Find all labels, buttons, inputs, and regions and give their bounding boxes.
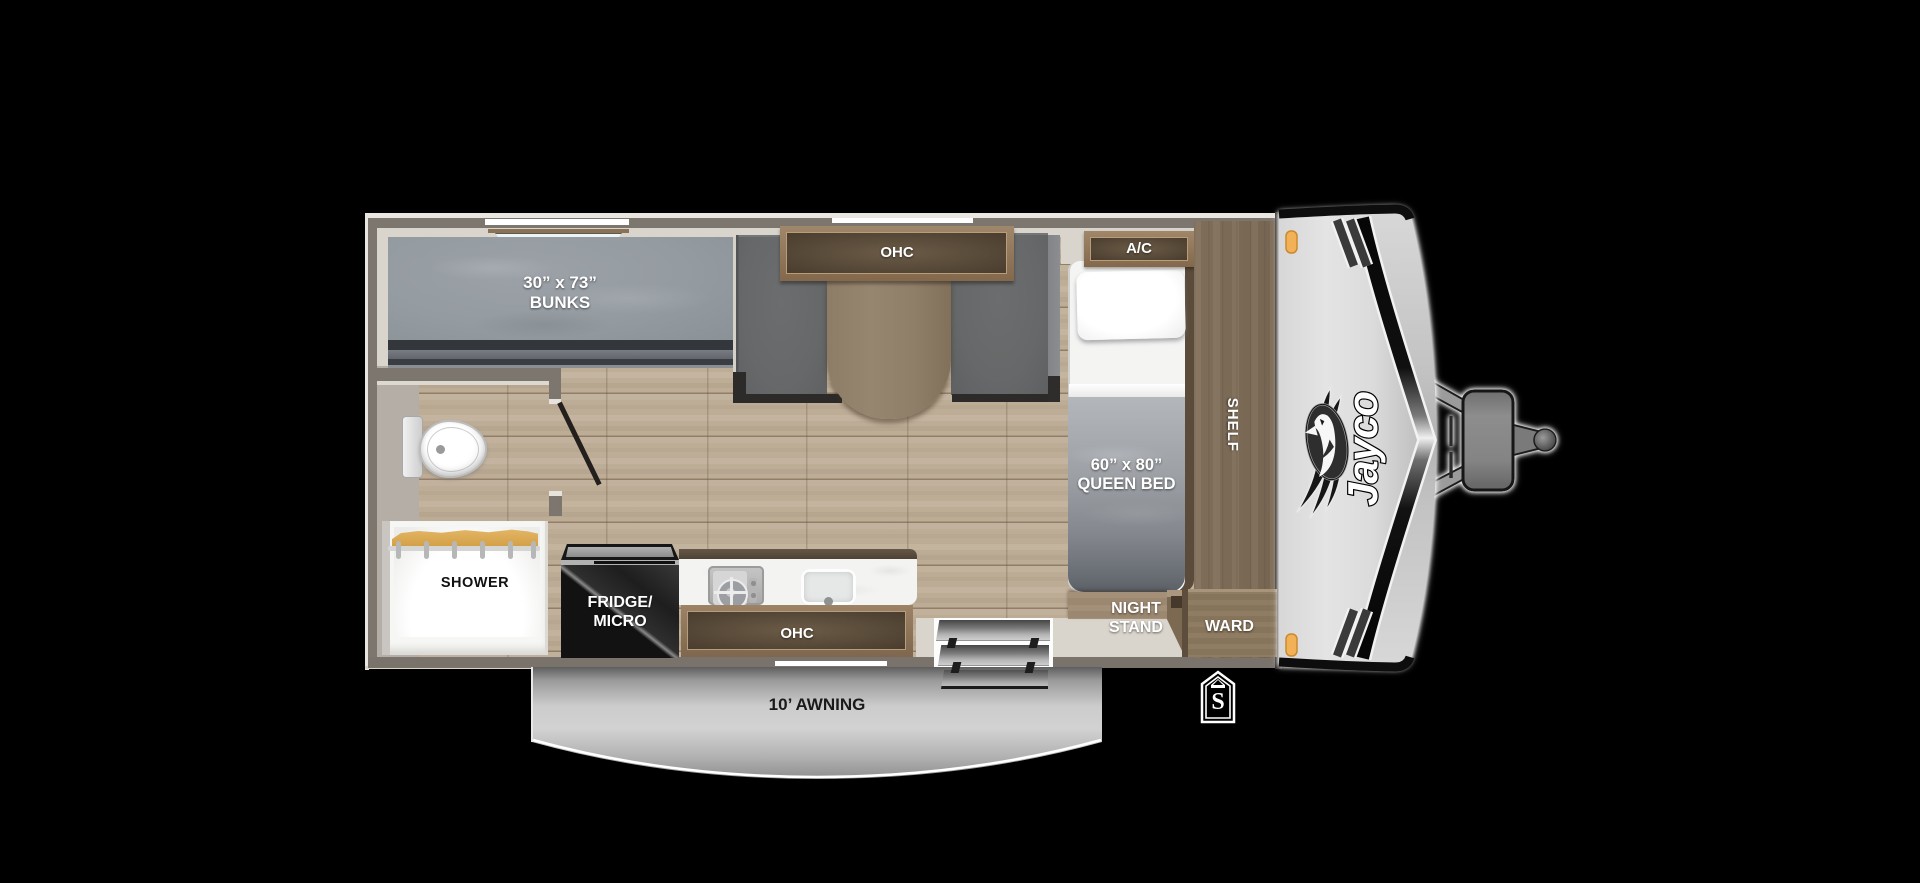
svg-text:S: S <box>1211 689 1224 715</box>
svg-text:10’ AWNING: 10’ AWNING <box>769 695 866 714</box>
svg-text:Jayco: Jayco <box>1339 392 1386 506</box>
